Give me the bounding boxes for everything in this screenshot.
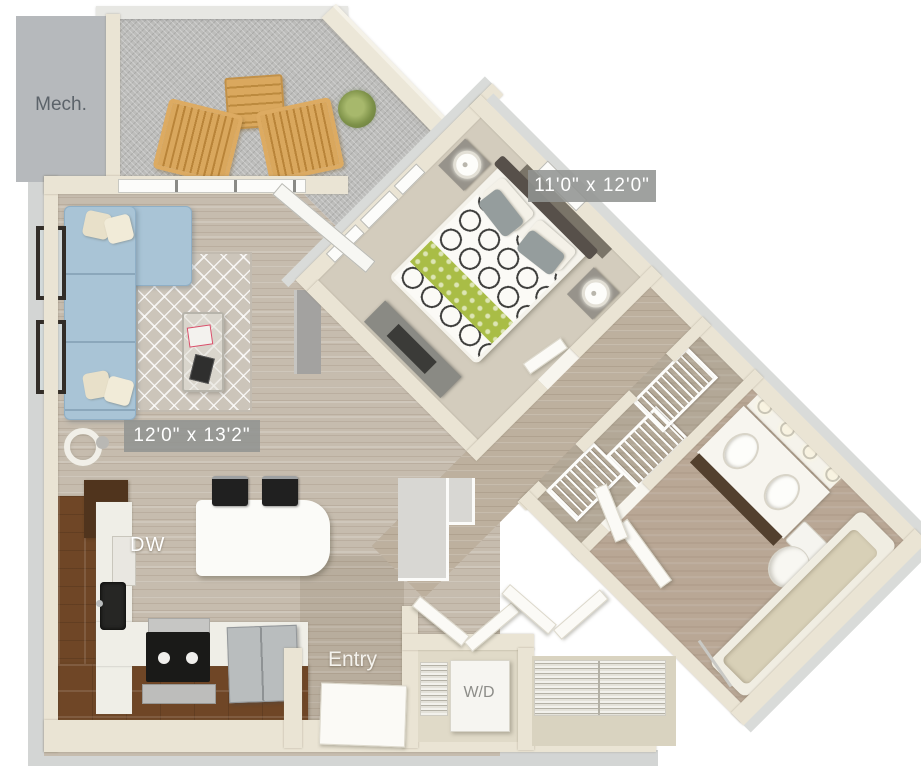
- patio-wall-top: [96, 6, 348, 19]
- exterior-wall-left: [44, 176, 58, 752]
- coat-closet-louver-doors: [534, 660, 666, 716]
- coffee-table-magazines: [187, 324, 214, 347]
- entry-wall-left: [284, 648, 302, 748]
- stove-burner-left: [158, 652, 170, 664]
- mech-room-label: Mech.: [16, 94, 106, 116]
- floor-lamp-base: [96, 436, 109, 449]
- bar-stool-left: [212, 476, 248, 506]
- closet-bifold-door-2b: [553, 589, 608, 639]
- laundry-vent-panel: [420, 662, 448, 716]
- floor-lamp: [64, 428, 102, 466]
- living-room-dimensions-badge: 12'0" x 13'2": [124, 420, 260, 452]
- dishwasher-label: DW: [130, 534, 174, 557]
- front-door-panel: [319, 683, 407, 748]
- patio-plant: [338, 90, 376, 128]
- bedroom-dimensions-badge: 11'0" x 12'0": [528, 170, 656, 202]
- stove-burner-right: [186, 652, 198, 664]
- kitchen-faucet: [96, 600, 103, 607]
- stove-cooktop: [146, 632, 210, 682]
- entry-label: Entry: [328, 648, 404, 672]
- tv-console: [294, 290, 321, 374]
- kitchen-sink: [100, 582, 126, 630]
- oven-front: [142, 684, 216, 704]
- bar-stool-right: [262, 476, 298, 506]
- washer-dryer-label: W/D: [450, 684, 508, 702]
- kitchen-island: [196, 500, 330, 576]
- mech-wall-right: [106, 14, 120, 186]
- floorplan-canvas: Mech.: [0, 0, 921, 768]
- hall-corner-wall-lower: [398, 478, 449, 581]
